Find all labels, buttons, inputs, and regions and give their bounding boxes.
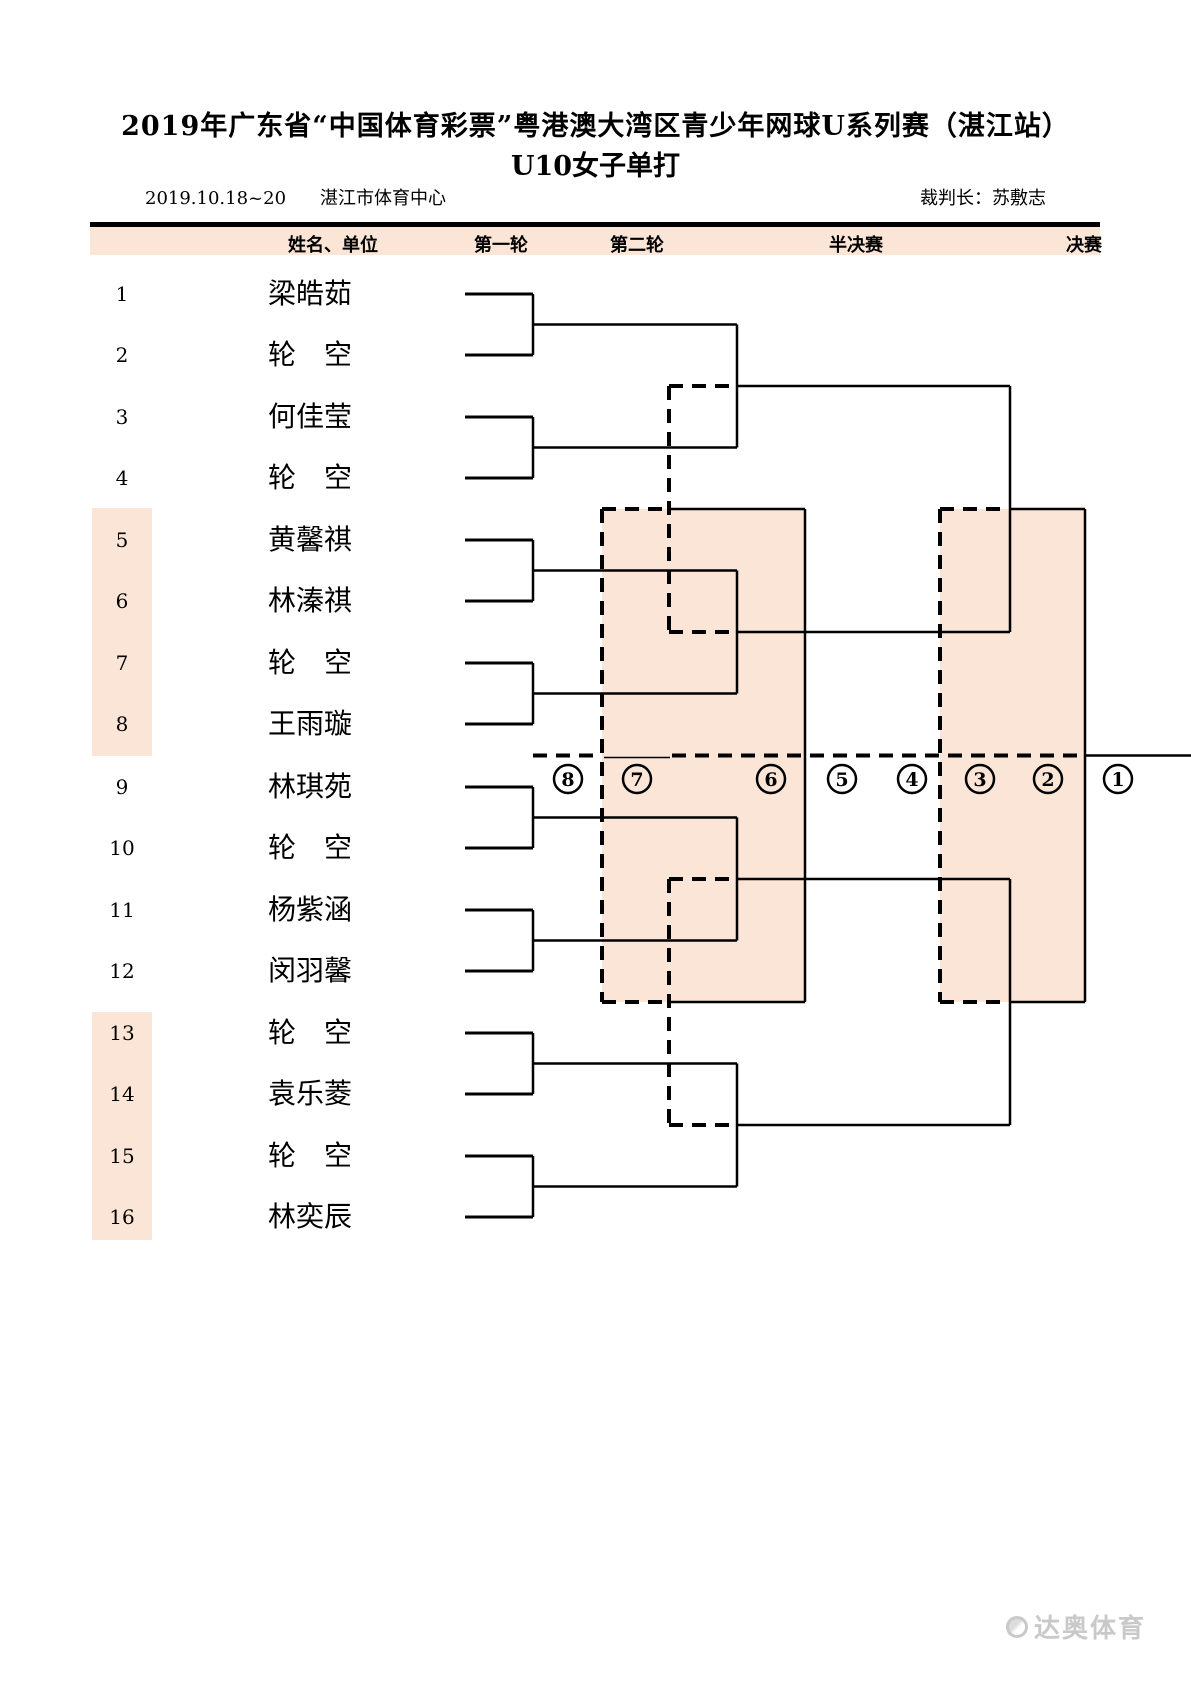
- player-name: 轮 空: [165, 1016, 455, 1050]
- place-marker-5: 5: [828, 765, 856, 793]
- final-connector: [1085, 509, 1191, 1002]
- player-name: 林溱祺: [165, 584, 455, 618]
- player-name: 黄馨祺: [165, 523, 455, 557]
- seed-number: 13: [92, 1016, 152, 1050]
- player-name: 闵羽馨: [165, 954, 455, 988]
- player-name: 林琪苑: [165, 770, 455, 804]
- seed-number: 15: [92, 1139, 152, 1173]
- svg-text:7: 7: [630, 769, 643, 791]
- brand-name: 达奥体育: [1034, 1614, 1146, 1644]
- svg-text:8: 8: [561, 769, 574, 791]
- seed-number: 16: [92, 1200, 152, 1234]
- player-name: 袁乐菱: [165, 1077, 455, 1111]
- seed-number: 9: [92, 770, 152, 804]
- player-name: 轮 空: [165, 1139, 455, 1173]
- svg-text:6: 6: [764, 769, 777, 791]
- player-name: 杨紫涵: [165, 893, 455, 927]
- seed-number: 8: [92, 707, 152, 741]
- player-name: 何佳莹: [165, 400, 455, 434]
- seed-number: 1: [92, 277, 152, 311]
- draw-sheet: 2019年广东省“中国体育彩票”粤港澳大湾区青少年网球U系列赛（湛江站） U10…: [0, 0, 1191, 1684]
- seed-number: 14: [92, 1077, 152, 1111]
- place-marker-4: 4: [898, 765, 926, 793]
- player-name: 轮 空: [165, 646, 455, 680]
- player-name: 林奕辰: [165, 1200, 455, 1234]
- svg-text:1: 1: [1111, 769, 1124, 791]
- svg-text:4: 4: [905, 769, 918, 791]
- seed-number: 10: [92, 831, 152, 865]
- player-name: 轮 空: [165, 338, 455, 372]
- svg-text:2: 2: [1041, 769, 1054, 791]
- svg-text:3: 3: [973, 769, 986, 791]
- player-name: 轮 空: [165, 461, 455, 495]
- svg-text:5: 5: [835, 769, 848, 791]
- player-name: 梁皓茹: [165, 277, 455, 311]
- place-marker-8: 8: [554, 765, 582, 793]
- brand-logo-icon: [1006, 1616, 1028, 1638]
- seed-number: 11: [92, 893, 152, 927]
- seed-number: 7: [92, 646, 152, 680]
- seed-number: 5: [92, 523, 152, 557]
- place-markers: 8 7 6 5 4 3 2 1: [554, 765, 1132, 793]
- seed-number: 4: [92, 461, 152, 495]
- player-name: 轮 空: [165, 831, 455, 865]
- round1-stubs: [465, 294, 533, 1217]
- brand-watermark: 达奥体育: [1006, 1608, 1191, 1648]
- seed-number: 2: [92, 338, 152, 372]
- seed-number: 12: [92, 954, 152, 988]
- seed-number: 6: [92, 584, 152, 618]
- place-marker-1: 1: [1104, 765, 1132, 793]
- seed-number: 3: [92, 400, 152, 434]
- player-name: 王雨璇: [165, 707, 455, 741]
